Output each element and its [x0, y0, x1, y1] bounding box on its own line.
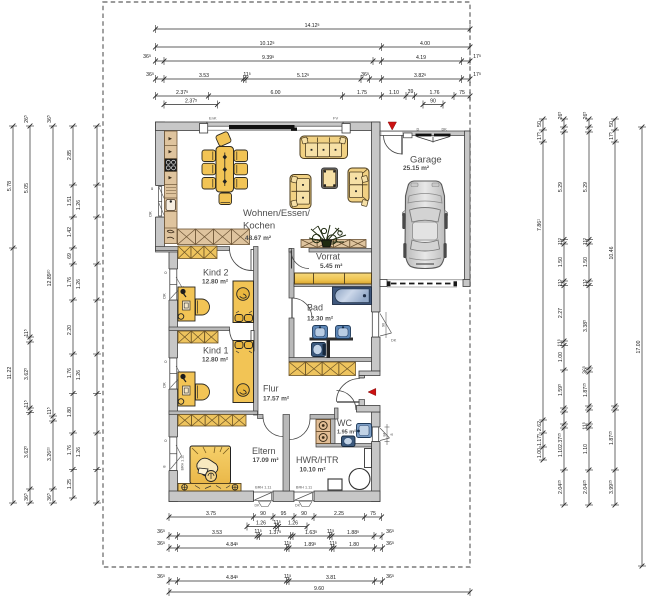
svg-text:75: 75 — [459, 90, 465, 96]
svg-text:DK: DK — [163, 382, 167, 388]
svg-text:1.25: 1.25 — [67, 479, 73, 489]
svg-text:Vorrat: Vorrat — [316, 252, 341, 262]
svg-text:Flur: Flur — [263, 384, 279, 394]
svg-text:3.53: 3.53 — [199, 73, 209, 79]
svg-text:DK: DK — [163, 293, 167, 299]
svg-text:DK: DK — [255, 504, 261, 508]
svg-text:25.15 m²: 25.15 m² — [403, 165, 430, 172]
svg-text:2.20: 2.20 — [67, 325, 73, 335]
svg-text:10.125: 10.125 — [260, 41, 275, 47]
svg-text:1.80: 1.80 — [67, 407, 73, 417]
svg-text:6.00: 6.00 — [270, 90, 280, 96]
svg-text:12.80 m²: 12.80 m² — [202, 357, 229, 364]
svg-text:39: 39 — [408, 89, 414, 95]
svg-text:5.45 m²: 5.45 m² — [320, 263, 343, 270]
svg-text:1.10: 1.10 — [583, 444, 589, 454]
svg-text:1.00: 1.00 — [537, 448, 543, 458]
svg-text:90: 90 — [430, 99, 436, 105]
svg-text:5.29: 5.29 — [558, 182, 564, 192]
svg-text:Kind 2: Kind 2 — [203, 268, 229, 278]
svg-text:1.76: 1.76 — [429, 90, 439, 96]
svg-text:2.27: 2.27 — [558, 308, 564, 318]
svg-text:95: 95 — [281, 511, 287, 517]
svg-text:17.00: 17.00 — [636, 340, 642, 353]
svg-text:WC: WC — [337, 418, 352, 428]
svg-text:84: 84 — [383, 433, 387, 437]
svg-text:1.76: 1.76 — [67, 368, 73, 378]
svg-text:10.46: 10.46 — [609, 246, 615, 259]
svg-text:2.85: 2.85 — [67, 150, 73, 160]
svg-text:1.10: 1.10 — [558, 447, 564, 457]
svg-text:1.26: 1.26 — [76, 447, 82, 457]
svg-text:5.29: 5.29 — [583, 182, 589, 192]
svg-text:EnK: EnK — [209, 116, 217, 121]
svg-text:12.30 m²: 12.30 m² — [307, 316, 334, 323]
svg-text:BRH 1.11: BRH 1.11 — [255, 486, 271, 490]
svg-text:FV: FV — [333, 116, 338, 121]
svg-text:48.67 m²: 48.67 m² — [245, 235, 272, 242]
svg-text:BRH 1.11: BRH 1.11 — [181, 455, 185, 470]
svg-text:Garage: Garage — [410, 155, 442, 166]
svg-text:D: D — [417, 128, 420, 132]
svg-text:Kind 1: Kind 1 — [203, 346, 229, 356]
svg-text:1.76: 1.76 — [67, 277, 73, 287]
svg-text:8: 8 — [390, 434, 394, 436]
svg-text:1.42: 1.42 — [67, 227, 73, 237]
svg-text:14.125: 14.125 — [305, 23, 320, 29]
svg-text:50: 50 — [609, 121, 615, 127]
svg-text:2.25: 2.25 — [334, 511, 344, 517]
svg-text:75: 75 — [370, 511, 376, 517]
svg-text:90: 90 — [260, 511, 266, 517]
svg-text:Eltern: Eltern — [252, 446, 276, 456]
svg-text:Bad: Bad — [307, 303, 323, 313]
svg-text:9.60: 9.60 — [314, 586, 324, 592]
svg-text:69: 69 — [67, 253, 73, 259]
svg-text:1.26: 1.26 — [288, 521, 298, 527]
svg-text:17.09 m²: 17.09 m² — [253, 457, 280, 464]
svg-text:1.95 m²: 1.95 m² — [337, 429, 356, 436]
svg-text:17.57 m²: 17.57 m² — [263, 396, 290, 403]
svg-text:1.26: 1.26 — [76, 370, 82, 380]
svg-text:1.50: 1.50 — [558, 257, 564, 267]
svg-text:BRH 1.11: BRH 1.11 — [296, 486, 312, 490]
svg-text:90: 90 — [301, 511, 307, 517]
svg-text:Wohnen/Essen/: Wohnen/Essen/ — [243, 208, 310, 219]
svg-text:1.51: 1.51 — [67, 196, 73, 206]
svg-text:3.53: 3.53 — [212, 530, 222, 536]
svg-text:50: 50 — [537, 121, 543, 127]
svg-text:1.00: 1.00 — [558, 352, 564, 362]
svg-text:1.26: 1.26 — [76, 279, 82, 289]
svg-text:DK: DK — [391, 339, 397, 343]
svg-text:DK: DK — [149, 211, 153, 217]
svg-text:3.81: 3.81 — [326, 575, 336, 581]
svg-text:5.05: 5.05 — [24, 183, 30, 193]
svg-text:1.26: 1.26 — [256, 521, 266, 527]
svg-text:1.50: 1.50 — [583, 257, 589, 267]
svg-text:4.00: 4.00 — [420, 41, 430, 47]
svg-text:4.19: 4.19 — [416, 55, 426, 61]
svg-text:DK: DK — [295, 504, 301, 508]
svg-text:8: 8 — [163, 465, 167, 467]
svg-text:DK: DK — [442, 128, 448, 132]
svg-text:1.10: 1.10 — [389, 90, 399, 96]
svg-text:3.75: 3.75 — [206, 511, 216, 517]
svg-text:1.80: 1.80 — [349, 542, 359, 548]
svg-text:1.75: 1.75 — [357, 90, 367, 96]
svg-text:1.76: 1.76 — [67, 445, 73, 455]
svg-text:Kochen: Kochen — [243, 221, 275, 232]
svg-text:10.10 m²: 10.10 m² — [300, 467, 327, 474]
svg-text:1.26: 1.26 — [76, 200, 82, 210]
svg-text:11.22: 11.22 — [7, 367, 13, 380]
svg-text:2.62: 2.62 — [537, 421, 543, 431]
svg-text:5.78: 5.78 — [7, 181, 13, 191]
svg-text:12.80 m²: 12.80 m² — [202, 279, 229, 286]
svg-text:HWR/HTR: HWR/HTR — [296, 455, 339, 465]
svg-text:90: 90 — [382, 323, 386, 327]
